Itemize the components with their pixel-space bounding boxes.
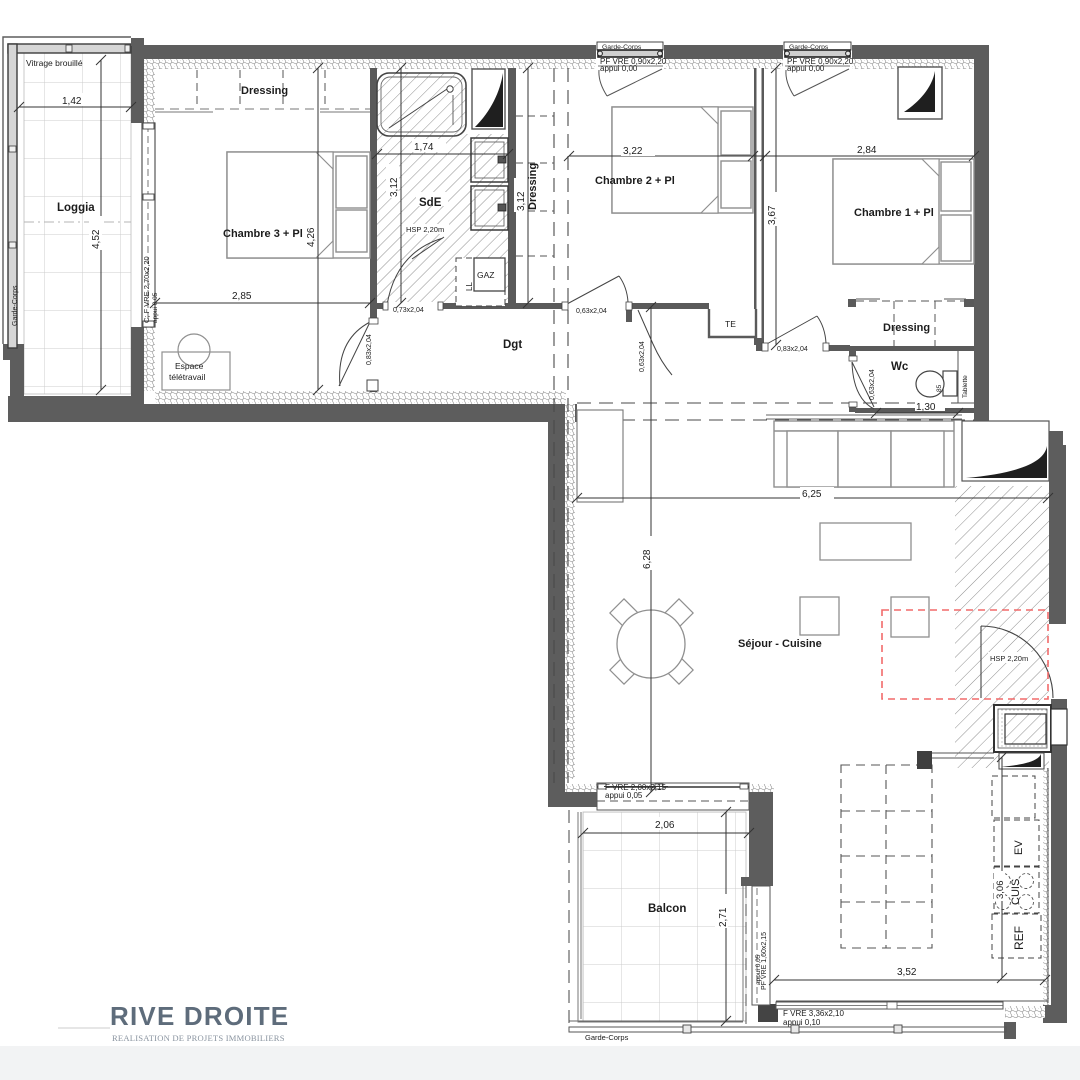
svg-text:Wc: Wc	[891, 361, 909, 373]
svg-text:TE: TE	[725, 319, 736, 329]
svg-text:appui 0,05: appui 0,05	[605, 791, 643, 800]
svg-text:6,25: 6,25	[802, 489, 822, 500]
svg-text:3,22: 3,22	[623, 146, 643, 157]
svg-text:Dressing: Dressing	[527, 163, 539, 210]
svg-text:4,26: 4,26	[306, 227, 317, 247]
svg-text:F VRE 3,36x2,10: F VRE 3,36x2,10	[783, 1009, 844, 1018]
svg-text:SdE: SdE	[419, 197, 442, 209]
svg-text:2,84: 2,84	[857, 145, 877, 156]
svg-text:appui 0,00: appui 0,00	[787, 64, 825, 73]
svg-text:0,73x2,04: 0,73x2,04	[393, 307, 424, 314]
svg-text:REF: REF	[1012, 926, 1026, 950]
svg-text:Espace: Espace	[175, 361, 204, 371]
svg-text:Balcon: Balcon	[648, 903, 686, 915]
svg-text:0,63x2,04: 0,63x2,04	[639, 341, 646, 372]
svg-text:0,83x2,04: 0,83x2,04	[366, 334, 373, 365]
svg-text:EV: EV	[1013, 840, 1025, 855]
svg-text:3,67: 3,67	[767, 205, 778, 225]
svg-text:3,52: 3,52	[897, 967, 917, 978]
svg-text:3,12: 3,12	[389, 177, 400, 197]
svg-text:1,74: 1,74	[414, 142, 434, 153]
svg-text:Chambre 1 + Pl: Chambre 1 + Pl	[854, 207, 934, 219]
svg-text:REALISATION DE PROJETS IMMOBIL: REALISATION DE PROJETS IMMOBILIERS	[112, 1033, 285, 1043]
svg-text:CUIS: CUIS	[1010, 879, 1022, 905]
svg-text:0,63x2,04: 0,63x2,04	[869, 369, 876, 400]
svg-text:6,28: 6,28	[642, 549, 653, 569]
svg-text:Tablette: Tablette	[962, 375, 969, 398]
svg-text:4,52: 4,52	[91, 229, 102, 249]
svg-text:1,30: 1,30	[916, 402, 936, 413]
svg-text:appui 0,05: appui 0,05	[755, 954, 762, 985]
svg-text:Vitrage brouillé: Vitrage brouillé	[26, 58, 83, 68]
svg-text:1,42: 1,42	[62, 96, 82, 107]
svg-text:2,85: 2,85	[232, 291, 252, 302]
svg-text:LL: LL	[465, 282, 474, 291]
svg-text:Loggia: Loggia	[57, 202, 95, 214]
svg-text:3,06: 3,06	[995, 881, 1006, 900]
svg-text:C; F VRE 2,70x2,20: C; F VRE 2,70x2,20	[142, 256, 151, 323]
svg-text:Garde-Corps: Garde-Corps	[585, 1033, 629, 1042]
svg-text:appui 0,05: appui 0,05	[152, 292, 159, 323]
svg-text:Chambre 2 + Pl: Chambre 2 + Pl	[595, 175, 675, 187]
svg-text:appui 0,10: appui 0,10	[783, 1018, 821, 1027]
svg-text:Dressing: Dressing	[241, 85, 288, 97]
svg-text:appui 0,00: appui 0,00	[600, 64, 638, 73]
svg-text:Garde-Corps: Garde-Corps	[12, 285, 19, 326]
svg-text:GAZ: GAZ	[477, 270, 494, 280]
svg-text:0,63x2,04: 0,63x2,04	[576, 308, 607, 315]
svg-text:2,71: 2,71	[718, 907, 729, 927]
svg-text:RIVE DROITE: RIVE DROITE	[110, 1001, 289, 1031]
svg-text:télétravail: télétravail	[169, 372, 205, 382]
svg-text:2,06: 2,06	[655, 820, 675, 831]
svg-text:Dgt: Dgt	[503, 339, 522, 351]
svg-text:Chambre 3 + Pl: Chambre 3 + Pl	[223, 228, 303, 240]
svg-text:Dressing: Dressing	[883, 322, 930, 334]
svg-text:3,12: 3,12	[516, 191, 527, 211]
svg-text:HSP 2,20m: HSP 2,20m	[990, 654, 1028, 663]
svg-text:PF VRE 1,60x2,15: PF VRE 1,60x2,15	[761, 932, 768, 990]
svg-text:HSP 2,20m: HSP 2,20m	[406, 225, 444, 234]
svg-text:Séjour - Cuisine: Séjour - Cuisine	[738, 638, 822, 650]
svg-text:85: 85	[936, 384, 943, 392]
svg-text:0,83x2,04: 0,83x2,04	[777, 346, 808, 353]
